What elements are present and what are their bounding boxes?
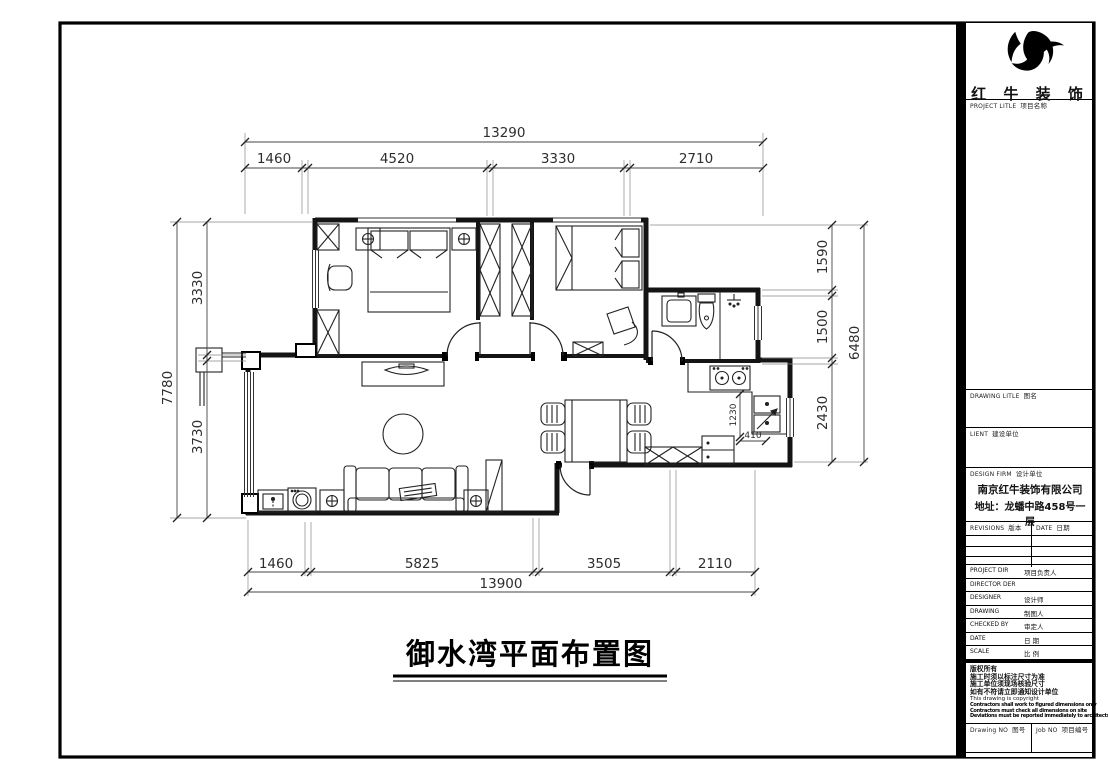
svg-text:3505: 3505 bbox=[587, 556, 621, 572]
dim-left-total: 7780 bbox=[160, 371, 176, 405]
row-designer: DESIGNER设计师 bbox=[966, 592, 1094, 606]
svg-text:2430: 2430 bbox=[815, 396, 831, 430]
dimension-extension-lines bbox=[170, 133, 868, 596]
drawing-number-row: Drawing NO图号 Job NO项目编号 bbox=[966, 723, 1094, 753]
design-firm-name: 南京红牛装饰有限公司 bbox=[966, 482, 1094, 497]
floor-plan-canvas: 13290 1460 4520 3330 2710 7780 3330 3730… bbox=[0, 0, 1108, 780]
drawing-title-section: DRAWING LITLE图名 bbox=[966, 390, 1094, 428]
dimension-ticks bbox=[173, 138, 868, 596]
tv bbox=[385, 366, 428, 375]
svg-text:5825: 5825 bbox=[405, 556, 439, 572]
drawing-title-label-cn: 图名 bbox=[1024, 392, 1037, 400]
svg-text:2110: 2110 bbox=[698, 556, 732, 572]
svg-text:1230: 1230 bbox=[729, 403, 739, 426]
drawing-sheet: 13290 1460 4520 3330 2710 7780 3330 3730… bbox=[0, 0, 1108, 780]
row-date: DATE日 期 bbox=[966, 633, 1094, 647]
row-director: DIRECTOR DER bbox=[966, 579, 1094, 593]
drawing-title: 御水湾平面布置图 bbox=[405, 637, 654, 671]
revisions-table: REVISIONS版本 DATE日期 bbox=[966, 522, 1094, 565]
dining-furniture bbox=[541, 400, 702, 465]
revision-row bbox=[966, 547, 1094, 558]
dim-right-total: 6480 bbox=[847, 326, 863, 360]
svg-text:3330: 3330 bbox=[541, 151, 575, 167]
svg-text:3730: 3730 bbox=[190, 420, 206, 454]
title-block: 红 牛 装 饰 PROJECT LITLE项目名称 DRAWING LITLE图… bbox=[966, 23, 1094, 757]
svg-text:1460: 1460 bbox=[257, 151, 291, 167]
svg-text:1460: 1460 bbox=[259, 556, 293, 572]
design-firm-label: DESIGN FIRM bbox=[970, 471, 1012, 478]
row-scale: SCALE比 例 bbox=[966, 646, 1094, 660]
copyright-notes: 版权所有 施工时须以标注尺寸为准 施工单位须现场核验尺寸 如有不符请立即通知设计… bbox=[966, 663, 1094, 723]
dim-bottom-total: 13900 bbox=[480, 576, 523, 592]
revisions-label: REVISIONS bbox=[970, 525, 1004, 532]
project-title-section: PROJECT LITLE项目名称 bbox=[966, 100, 1094, 390]
svg-text:410: 410 bbox=[744, 431, 761, 441]
row-checked-by: CHECKED BY审定人 bbox=[966, 619, 1094, 633]
personnel-rows: PROJECT DIR项目负责人 DIRECTOR DER DESIGNER设计… bbox=[966, 565, 1094, 660]
titleblock-divider-bar bbox=[956, 23, 966, 757]
living-room-furniture bbox=[258, 362, 502, 512]
svg-text:1590: 1590 bbox=[815, 240, 831, 274]
bathroom-fixtures bbox=[662, 292, 741, 359]
svg-text:3330: 3330 bbox=[190, 271, 206, 305]
sofa bbox=[344, 466, 468, 512]
client-label: LIENT bbox=[970, 431, 988, 438]
bedroom1-furniture bbox=[317, 224, 476, 355]
svg-text:2710: 2710 bbox=[679, 151, 713, 167]
design-firm-section: DESIGN FIRM设计单位 南京红牛装饰有限公司 地址：龙蟠中路458号一 … bbox=[966, 468, 1094, 522]
project-title-label: PROJECT LITLE bbox=[970, 103, 1016, 110]
project-title-label-cn: 项目名称 bbox=[1020, 102, 1047, 110]
dimension-lines bbox=[177, 142, 864, 592]
desk-chair bbox=[607, 307, 635, 334]
drawing-no-label: Drawing NO bbox=[970, 727, 1008, 734]
round-rug bbox=[383, 414, 423, 454]
shoe-cabinet bbox=[645, 447, 702, 465]
revision-row bbox=[966, 536, 1094, 547]
dining-chairs bbox=[541, 403, 651, 453]
client-section: LIENT建设单位 bbox=[966, 428, 1094, 468]
row-project-dir: PROJECT DIR项目负责人 bbox=[966, 565, 1094, 579]
row-drawing: DRAWING制图人 bbox=[966, 606, 1094, 620]
drawing-title-group: 御水湾平面布置图 bbox=[393, 637, 667, 681]
design-firm-label-cn: 设计单位 bbox=[1016, 470, 1043, 478]
client-label-cn: 建设单位 bbox=[992, 430, 1019, 438]
svg-text:4520: 4520 bbox=[380, 151, 414, 167]
drawing-title-label: DRAWING LITLE bbox=[970, 393, 1020, 400]
dim-top-total: 13290 bbox=[483, 125, 526, 141]
job-no-label: Job NO bbox=[1036, 727, 1058, 734]
hall-closet bbox=[480, 224, 532, 316]
design-firm-address: 地址：龙蟠中路458号一 bbox=[966, 498, 1094, 513]
chair bbox=[328, 266, 352, 290]
logo-section: 红 牛 装 饰 bbox=[966, 23, 1094, 100]
revisions-date-label: DATE bbox=[1036, 525, 1052, 532]
svg-text:1500: 1500 bbox=[815, 310, 831, 344]
toilet bbox=[698, 294, 715, 302]
ac-unit bbox=[196, 348, 246, 406]
bedroom2-furniture bbox=[556, 226, 642, 356]
redbull-logo-icon bbox=[995, 27, 1065, 77]
single-bed bbox=[556, 226, 642, 290]
dining-table bbox=[565, 400, 627, 462]
